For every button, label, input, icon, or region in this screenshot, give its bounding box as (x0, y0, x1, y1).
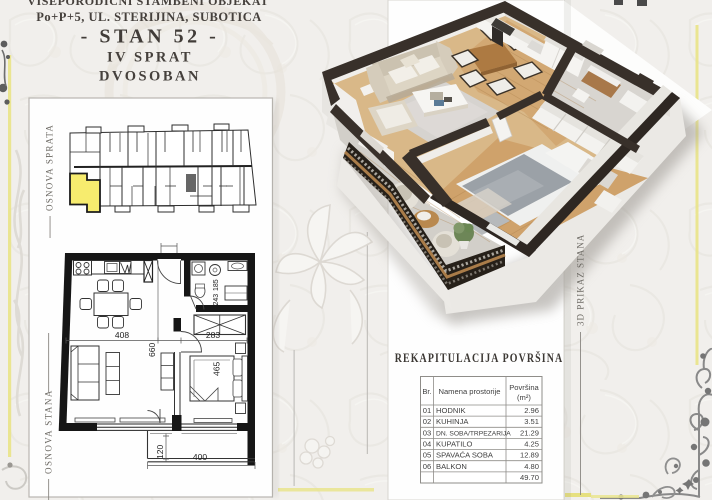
svg-text:408: 408 (115, 330, 129, 340)
svg-text:243: 243 (213, 294, 220, 306)
svg-text:02: 02 (423, 417, 431, 426)
svg-text:BALKON: BALKON (436, 462, 467, 471)
svg-text:04: 04 (423, 440, 431, 449)
svg-text:HODNIK: HODNIK (436, 406, 466, 415)
svg-text:3.51: 3.51 (524, 417, 539, 426)
svg-text:465: 465 (212, 362, 222, 376)
svg-text:DN. SOBA/TRPEZARIJA: DN. SOBA/TRPEZARIJA (436, 430, 511, 437)
svg-text:SPAVAĆA SOBA: SPAVAĆA SOBA (436, 451, 494, 460)
svg-text:05: 05 (423, 451, 431, 460)
svg-text:Br.: Br. (422, 387, 431, 396)
svg-text:Namena prostorije: Namena prostorije (438, 387, 500, 396)
svg-text:12.89: 12.89 (520, 451, 539, 460)
svg-text:21.29: 21.29 (520, 428, 539, 437)
svg-text:KUPATILO: KUPATILO (436, 440, 473, 449)
svg-text:01: 01 (423, 406, 431, 415)
svg-text:185: 185 (213, 279, 220, 291)
svg-text:(m²): (m²) (517, 393, 531, 402)
svg-text:4.80: 4.80 (524, 462, 539, 471)
svg-text:283: 283 (206, 330, 220, 340)
svg-text:REKAPITULACIJA POVRŠINA: REKAPITULACIJA POVRŠINA (395, 350, 563, 366)
svg-text:3D PRIKAZ STANA: 3D PRIKAZ STANA (576, 234, 586, 326)
svg-text:Površina: Površina (509, 383, 539, 392)
svg-text:2.96: 2.96 (524, 406, 539, 415)
svg-text:Po+P+5, UL. STERIJINA, SUBOTIC: Po+P+5, UL. STERIJINA, SUBOTICA (36, 10, 262, 24)
svg-text:03: 03 (423, 428, 431, 437)
svg-text:660: 660 (147, 343, 157, 357)
svg-text:OSNOVA STANA: OSNOVA STANA (44, 389, 54, 474)
svg-text:4.25: 4.25 (524, 440, 539, 449)
svg-text:06: 06 (423, 462, 431, 471)
svg-text:VISEPORODICNI STAMBENI OBJEKAT: VISEPORODICNI STAMBENI OBJEKAT (27, 0, 269, 8)
svg-text:KUHINJA: KUHINJA (436, 417, 469, 426)
svg-text:IV SPRAT: IV SPRAT (107, 50, 193, 66)
svg-text:120: 120 (155, 445, 165, 459)
svg-text:OSNOVA SPRATA: OSNOVA SPRATA (45, 124, 55, 211)
svg-text:DVOSOBAN: DVOSOBAN (99, 69, 201, 85)
svg-text:49.70: 49.70 (520, 473, 539, 482)
svg-text:400: 400 (193, 452, 207, 462)
svg-text:- STAN 52 -: - STAN 52 - (81, 26, 220, 48)
